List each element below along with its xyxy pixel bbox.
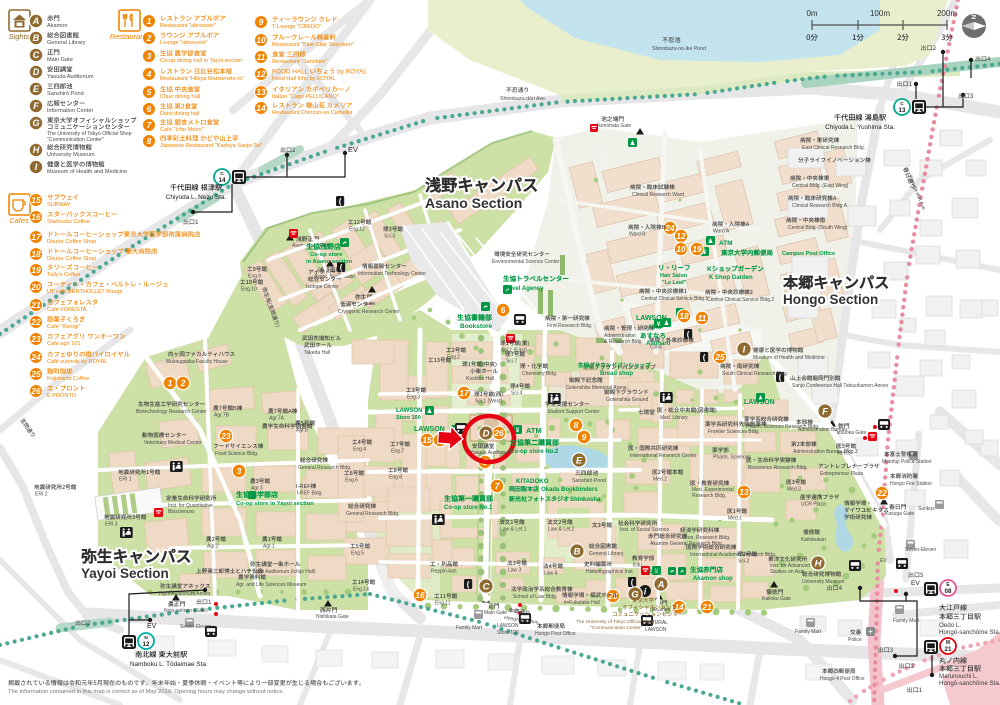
svg-text:23: 23: [220, 431, 231, 441]
svg-text:Doutor Coffee Shop: Doutor Coffee Shop: [47, 239, 96, 245]
svg-text:七徳堂: 七徳堂: [638, 408, 655, 416]
svg-text:Yayoi Section: Yayoi Section: [81, 566, 169, 581]
svg-text:22: 22: [876, 488, 887, 498]
svg-text:Entrepreneur Plaza: Entrepreneur Plaza: [820, 471, 863, 477]
svg-text:(: (: [703, 353, 706, 362]
svg-text:E: E: [576, 455, 583, 466]
svg-text:病院・入院棟B: 病院・入院棟B: [628, 223, 666, 231]
svg-text:6: 6: [501, 305, 506, 315]
svg-text:Family Mart: Family Mart: [893, 618, 920, 624]
svg-text:T-Lounge "CREDO": T-Lounge "CREDO": [272, 24, 321, 30]
svg-text:Chiyoda L. Nezu Sta.: Chiyoda L. Nezu Sta.: [166, 194, 227, 201]
svg-text:Ward B: Ward B: [629, 232, 646, 238]
svg-text:Asunaro: Asunaro: [646, 341, 671, 347]
svg-text:Agr.2: Agr.2: [207, 544, 219, 550]
svg-text:0分: 0分: [806, 32, 818, 43]
svg-text:20: 20: [30, 282, 41, 292]
svg-text:15: 15: [31, 195, 41, 205]
svg-text:Food Science Bldg.: Food Science Bldg.: [215, 451, 258, 457]
svg-text:工2号館: 工2号館: [446, 346, 466, 354]
svg-text:出口1: 出口1: [196, 597, 212, 606]
svg-text:Japanese Restaurant "Kadoya Sa: Japanese Restaurant "Kadoya Sanjo-Tei": [160, 143, 263, 149]
svg-text:D: D: [483, 428, 490, 439]
svg-text:千代田線 湯島駅: 千代田線 湯島駅: [834, 113, 887, 123]
svg-text:Law & Let.2: Law & Let.2: [548, 527, 575, 533]
svg-text:Shinobazu-dōri Ave.: Shinobazu-dōri Ave.: [500, 96, 546, 102]
svg-text:情報基盤センター: 情報基盤センター: [362, 262, 407, 270]
svg-text:生協書籍部: 生協書籍部: [457, 313, 492, 323]
svg-text:小柴ホール: 小柴ホール: [470, 367, 498, 375]
svg-text:General Research Bldg.: General Research Bldg.: [298, 465, 351, 471]
svg-text:F: F: [822, 406, 828, 417]
svg-text:Kaitokukan: Kaitokukan: [801, 537, 826, 543]
svg-text:I-REF棟: I-REF棟: [296, 482, 317, 490]
svg-text:Eng.14: Eng.14: [353, 587, 369, 593]
svg-text:B: B: [574, 546, 581, 557]
svg-text:定量生命科学研究所: 定量生命科学研究所: [166, 494, 217, 502]
svg-text:¥: ¥: [516, 427, 520, 434]
svg-text:24: 24: [664, 223, 675, 233]
svg-text:Restaurant "Hibiya Matsumoto-r: Restaurant "Hibiya Matsumoto-ro": [160, 76, 245, 82]
svg-text:Sci.7: Sci.7: [506, 359, 517, 365]
svg-text:23: 23: [30, 334, 41, 344]
svg-text:総合研究博物館: 総合研究博物館: [47, 143, 92, 152]
svg-text:Seven-Eleven: Seven-Eleven: [905, 547, 936, 553]
svg-text:Biotechnology Research Center: Biotechnology Research Center: [136, 409, 207, 415]
svg-text:史料編纂所: 史料編纂所: [584, 560, 612, 568]
svg-text:25: 25: [714, 352, 725, 362]
svg-text:100m: 100m: [870, 9, 890, 18]
svg-text:East Clinical Research Bldg.: East Clinical Research Bldg.: [802, 145, 865, 151]
svg-text:工11号館: 工11号館: [434, 592, 458, 600]
svg-text:法文1号館: 法文1号館: [499, 518, 525, 526]
svg-text:Agr.5: Agr.5: [296, 428, 308, 434]
svg-text:Cafe "Icho Metro": Cafe "Icho Metro": [160, 127, 204, 133]
svg-text:懐徳門: 懐徳門: [766, 587, 784, 596]
svg-text:理1号館(東): 理1号館(東): [500, 339, 529, 347]
svg-text:8: 8: [574, 420, 579, 430]
svg-text:出口2: 出口2: [75, 618, 91, 627]
svg-text:農5号館: 農5号館: [295, 419, 315, 427]
svg-text:武田ホール: 武田ホール: [304, 341, 332, 349]
svg-text:Hongo Section: Hongo Section: [783, 292, 878, 307]
svg-text:Co-op store: Co-op store: [310, 252, 343, 258]
svg-text:C: C: [483, 581, 490, 592]
svg-text:春日門: 春日門: [889, 502, 907, 511]
svg-text:Store 100: Store 100: [396, 415, 421, 421]
svg-text:理3号館: 理3号館: [383, 225, 403, 233]
svg-text:工5号館: 工5号館: [350, 542, 370, 550]
svg-text:Med.1: Med.1: [728, 516, 742, 522]
svg-text:上野英三郎博士とハチ公像: 上野英三郎博士とハチ公像: [196, 567, 264, 575]
svg-text:General Research Bldg.: General Research Bldg.: [346, 511, 399, 517]
svg-text:B: B: [33, 33, 40, 43]
svg-text:13: 13: [899, 107, 906, 114]
svg-text:ERI 2: ERI 2: [35, 492, 48, 498]
svg-text:Italian "Capo PELLICANO": Italian "Capo PELLICANO": [272, 94, 339, 100]
svg-text:Law 3: Law 3: [508, 568, 522, 574]
svg-text:Administration Bureau: Administration Bureau: [798, 427, 847, 433]
svg-text:情報学環・福武ホール: 情報学環・福武ホール: [562, 591, 618, 599]
svg-text:Agr.1: Agr.1: [263, 544, 275, 550]
svg-text:本部棟: 本部棟: [796, 418, 813, 426]
svg-text:地震研究所1号館: 地震研究所1号館: [118, 468, 161, 476]
svg-text:病院・南研究棟: 病院・南研究棟: [720, 362, 760, 370]
svg-text:21: 21: [701, 602, 712, 612]
svg-text:22: 22: [30, 317, 41, 327]
svg-text:11: 11: [698, 313, 707, 323]
svg-text:Sanjo Conference Hall Tatsuoka: Sanjo Conference Hall Tatsuokamon Annex: [792, 383, 889, 389]
svg-text:4: 4: [146, 69, 152, 79]
svg-text:生物生産工学研究センター: 生物生産工学研究センター: [138, 400, 206, 408]
svg-text:病院・中央棟南: 病院・中央棟南: [786, 216, 826, 224]
svg-text:Yasuda Auditorium: Yasuda Auditorium: [47, 74, 94, 80]
svg-text:General Library: General Library: [47, 40, 86, 46]
svg-text:東京大学内郵便局: 東京大学内郵便局: [720, 247, 774, 257]
svg-text:0m: 0m: [806, 9, 817, 18]
svg-text:農3号館: 農3号館: [250, 477, 270, 485]
svg-text:工13号館: 工13号館: [428, 356, 452, 364]
svg-text:ERI 3: ERI 3: [105, 522, 118, 528]
svg-text:Café "Kurogi": Café "Kurogi": [47, 324, 81, 330]
svg-text:Ikenohata Gate: Ikenohata Gate: [597, 123, 631, 129]
svg-text:医・生命科学実験棟: 医・生命科学実験棟: [746, 456, 797, 464]
svg-text:Bookstore: Bookstore: [460, 323, 493, 330]
svg-text:工・列品館: 工・列品館: [430, 560, 458, 568]
svg-text:レストラン 椿山荘 カメリア: レストラン 椿山荘 カメリア: [272, 101, 353, 110]
svg-text:Family Mart: Family Mart: [795, 629, 822, 635]
svg-text:Eng.12: Eng.12: [349, 227, 365, 233]
svg-text:EV: EV: [880, 558, 887, 564]
svg-text:出口4: 出口4: [975, 54, 991, 63]
svg-text:FOOD HALL いちょう by ROYAL: FOOD HALL いちょう by ROYAL: [272, 67, 367, 76]
svg-text:Chuo dining hall: Chuo dining hall: [160, 94, 200, 100]
svg-text:I: I: [743, 344, 746, 355]
svg-text:病院・東研究棟: 病院・東研究棟: [800, 136, 840, 144]
svg-text:SUBWAY: SUBWAY: [47, 202, 71, 208]
svg-text:Eng.6: Eng.6: [345, 478, 358, 484]
svg-text:Sci-2: Sci-2: [738, 559, 750, 565]
svg-text:Biosciences: Biosciences: [168, 509, 195, 515]
svg-text:赤門: 赤門: [47, 14, 60, 23]
svg-text:Inst. of Social Science: Inst. of Social Science: [620, 527, 669, 533]
svg-text:(: (: [631, 578, 634, 587]
svg-text:E: E: [33, 84, 40, 94]
svg-text:生協グラウンドパンショップ: 生協グラウンドパンショップ: [578, 361, 651, 369]
svg-text:International Research Center: International Research Center: [630, 453, 697, 459]
svg-text:KITADOKO: KITADOKO: [516, 476, 549, 485]
svg-text:Akamon: Akamon: [47, 23, 68, 29]
svg-text:Hongo Post Office: Hongo Post Office: [535, 631, 576, 637]
svg-text:19: 19: [692, 244, 702, 254]
svg-text:Café yurinoki by ROYAL: Café yurinoki by ROYAL: [47, 359, 107, 365]
svg-text:Central Bldg. (East Wing): Central Bldg. (East Wing): [792, 183, 849, 189]
svg-text:EV: EV: [147, 623, 157, 630]
svg-text:工7号館: 工7号館: [390, 440, 410, 448]
svg-text:麹町珈琲: 麹町珈琲: [47, 367, 73, 376]
svg-text:医3号館: 医3号館: [786, 478, 806, 486]
svg-text:工10号館: 工10号館: [240, 278, 264, 286]
svg-text:13: 13: [256, 87, 266, 97]
svg-text:The University of Tokyo Offici: The University of Tokyo Official Shop: [576, 619, 655, 625]
svg-text:本郷四郵便局: 本郷四郵便局: [822, 667, 856, 675]
svg-text:K Shop Garden: K Shop Garden: [709, 275, 753, 281]
svg-text:Student Support Center: Student Support Center: [547, 409, 600, 415]
svg-text:農2号館: 農2号館: [206, 535, 226, 543]
svg-text:Law 4: Law 4: [544, 571, 558, 577]
svg-text:山上会館龍岡門別館: 山上会館龍岡門別館: [790, 374, 841, 382]
svg-text:工4号館: 工4号館: [352, 438, 372, 446]
svg-text:理1号館(西): 理1号館(西): [474, 390, 503, 398]
svg-text:Museum of Health and Medicine: Museum of Health and Medicine: [753, 355, 825, 361]
svg-text:病院・中央棟東: 病院・中央棟東: [790, 174, 830, 182]
svg-text:"Le Leaf": "Le Leaf": [662, 280, 687, 286]
svg-text:The information contained in t: The information contained in this map is…: [8, 689, 285, 695]
svg-text:医・教育研究棟: 医・教育研究棟: [690, 479, 730, 487]
svg-text:1: 1: [147, 16, 152, 26]
svg-text:学術研究棟: 学術研究棟: [844, 513, 872, 521]
svg-text:出口3: 出口3: [958, 91, 974, 100]
svg-text:社会科学研究所: 社会科学研究所: [618, 519, 658, 527]
svg-text:総合図書館: 総合図書館: [47, 31, 80, 40]
svg-text:11: 11: [257, 52, 266, 62]
svg-text:D: D: [33, 67, 40, 77]
svg-text:26: 26: [493, 428, 504, 438]
svg-text:Namboku L. Tōdaimae Sta.: Namboku L. Tōdaimae Sta.: [130, 661, 208, 668]
svg-text:Eng.3: Eng.3: [407, 395, 420, 401]
svg-text:薬学部: 薬学部: [712, 446, 729, 454]
svg-text:出口3: 出口3: [878, 645, 894, 654]
svg-text:Ward A: Ward A: [713, 229, 730, 235]
svg-text:G: G: [32, 118, 39, 128]
svg-text:Eng.7: Eng.7: [391, 449, 404, 455]
svg-text:First Research Bldg.: First Research Bldg.: [547, 323, 592, 329]
svg-text:薬学系研究科先端創薬棟: 薬学系研究科先端創薬棟: [705, 420, 767, 428]
svg-text:(: (: [467, 580, 470, 589]
svg-text:エ・プロント: エ・プロント: [47, 384, 85, 393]
svg-text:学生支援センター: 学生支援センター: [545, 400, 590, 408]
svg-text:I-REF Bldg.: I-REF Bldg.: [297, 491, 323, 497]
svg-text:Co-op store in Yayoi section: Co-op store in Yayoi section: [236, 501, 314, 507]
svg-text:10: 10: [676, 244, 686, 254]
svg-text:出口5: 出口5: [908, 570, 924, 579]
svg-text:レストラン アブルボア: レストラン アブルボア: [160, 14, 226, 23]
svg-text:生協第一購買部: 生協第一購買部: [444, 494, 493, 504]
svg-text:Store 100: Store 100: [497, 630, 519, 636]
svg-text:ブルークレール精養軒: ブルークレール精養軒: [272, 33, 337, 42]
svg-text:Clinical Research Ward: Clinical Research Ward: [632, 192, 684, 198]
svg-text:ii=Fukutake Hall: ii=Fukutake Hall: [564, 600, 600, 606]
svg-text:Hongō-sanchōme Sta.: Hongō-sanchōme Sta.: [939, 629, 1000, 636]
svg-text:農1号館: 農1号館: [262, 535, 282, 543]
svg-text:農7号館A棟: 農7号館A棟: [268, 407, 298, 415]
svg-text:病院・中央診療棟2: 病院・中央診療棟2: [705, 288, 753, 296]
svg-text:Akamon General Research Bldg.: Akamon General Research Bldg.: [650, 541, 723, 547]
svg-text:向ヶ岡ファカルティハウス: 向ヶ岡ファカルティハウス: [168, 350, 236, 358]
svg-text:2: 2: [146, 33, 152, 43]
svg-text:総合研究博物館: 総合研究博物館: [802, 570, 842, 578]
svg-text:医・総合中央館(図書館): 医・総合中央館(図書館): [657, 406, 717, 414]
svg-text:Kショップガーデン: Kショップガーデン: [707, 263, 764, 273]
svg-text:総合図書館: 総合図書館: [589, 542, 617, 550]
svg-text:21: 21: [30, 300, 41, 310]
svg-text:Marunouchi L.: Marunouchi L.: [939, 673, 978, 680]
svg-text:Daini dining hall: Daini dining hall: [160, 111, 200, 117]
svg-text:理4号館: 理4号館: [510, 382, 530, 390]
svg-text:新光社フォトスタジオ: 新光社フォトスタジオ: [508, 494, 569, 503]
svg-text:Isotope Center: Isotope Center: [306, 284, 339, 290]
svg-text:Agr.7B: Agr.7B: [214, 413, 230, 419]
svg-text:200m: 200m: [937, 9, 957, 18]
svg-text:UCR Plaza: UCR Plaza: [801, 502, 826, 508]
svg-text:24: 24: [30, 352, 41, 362]
svg-text:University Museum: University Museum: [47, 152, 95, 158]
svg-text:病院・臨床研究棟A: 病院・臨床研究棟A: [788, 194, 837, 202]
svg-text:10: 10: [256, 35, 266, 45]
svg-text:Research Bldg.: Research Bldg.: [692, 493, 726, 499]
svg-text:出口1: 出口1: [897, 79, 913, 88]
svg-text:工14号館: 工14号館: [352, 578, 376, 586]
svg-text:産学連携プラザ: 産学連携プラザ: [800, 493, 840, 501]
svg-text:14: 14: [256, 103, 266, 113]
svg-text:理2号館: 理2号館: [737, 550, 757, 558]
svg-text:Restaurant "Sanshiro": Restaurant "Sanshiro": [272, 59, 327, 65]
svg-text:三四郎池: 三四郎池: [47, 82, 73, 91]
svg-text:ラウンジ アブルボア: ラウンジ アブルボア: [160, 31, 220, 40]
svg-text:医・国際共同研究棟: 医・国際共同研究棟: [628, 444, 679, 452]
svg-text:2: 2: [180, 378, 186, 388]
svg-text:池之端門: 池之端門: [601, 114, 624, 123]
svg-text:生協トラベルセンター: 生協トラベルセンター: [503, 273, 569, 283]
svg-text:Sanshirō Pond: Sanshirō Pond: [47, 91, 84, 97]
svg-text:9: 9: [259, 17, 264, 27]
svg-text:懐徳館: 懐徳館: [803, 528, 820, 536]
svg-text:コミュニケーションセンター: コミュニケーションセンター: [47, 122, 130, 131]
svg-text:Chemistry Bldg.: Chemistry Bldg.: [522, 371, 557, 377]
svg-text:広報センター: 広報センター: [47, 99, 85, 108]
svg-text:正門: 正門: [488, 601, 500, 610]
svg-text:不忍池: 不忍池: [662, 35, 681, 44]
svg-text:Starbucks Coffee: Starbucks Coffee: [47, 219, 90, 225]
svg-text:生協 中央食堂: 生協 中央食堂: [160, 85, 201, 94]
svg-text:+: +: [868, 629, 872, 636]
svg-text:地震研究所3号館: 地震研究所3号館: [104, 513, 147, 521]
svg-text:Family Mart: Family Mart: [456, 625, 483, 631]
svg-text:Clinical Research Bldg.A: Clinical Research Bldg.A: [792, 203, 848, 209]
svg-text:生協農学部店: 生協農学部店: [236, 490, 278, 500]
svg-text:生協 第2食堂: 生協 第2食堂: [160, 102, 198, 111]
svg-text:Mukougaoka Faculty House: Mukougaoka Faculty House: [166, 359, 228, 365]
svg-text:& Research Bldg.: & Research Bldg.: [604, 339, 643, 345]
svg-text:生協第二購買部: 生協第二購買部: [510, 438, 559, 448]
svg-text:アントレプレナープラザ: アントレプレナープラザ: [818, 462, 880, 470]
svg-text:浅野キャンパス: 浅野キャンパス: [425, 172, 538, 196]
svg-text:Agr.7A: Agr.7A: [269, 416, 285, 422]
svg-text:病院・入院棟A: 病院・入院棟A: [712, 220, 750, 228]
svg-text:Information Technology Center: Information Technology Center: [358, 271, 426, 277]
svg-text:Eng.11: Eng.11: [435, 601, 451, 607]
svg-text:第2本部棟: 第2本部棟: [791, 440, 817, 448]
svg-text:総合センター: 総合センター: [308, 275, 342, 283]
svg-text:8: 8: [147, 136, 152, 146]
svg-text:カフェゆりの樹バイロイヤル: カフェゆりの樹バイロイヤル: [47, 350, 131, 359]
svg-text:Historiographical Inst.: Historiographical Inst.: [586, 569, 634, 575]
svg-text:18: 18: [31, 249, 41, 259]
svg-text:Hongo Fire Station: Hongo Fire Station: [890, 481, 932, 487]
svg-text:三四郎池: 三四郎池: [575, 468, 598, 477]
svg-text:Central Clinical Service Bldg.: Central Clinical Service Bldg.2: [707, 297, 774, 303]
svg-text:病院・第一研究棟: 病院・第一研究棟: [545, 314, 590, 322]
svg-text:イタリアン カポペリカーノ: イタリアン カポペリカーノ: [272, 85, 350, 94]
svg-text:弥生講堂アネックス: 弥生講堂アネックス: [160, 582, 211, 590]
svg-text:理7号館: 理7号館: [505, 350, 525, 358]
svg-text:9: 9: [582, 432, 587, 442]
svg-text:弥生キャンパス: 弥生キャンパス: [81, 544, 192, 567]
svg-text:総合研究棟: 総合研究棟: [348, 502, 376, 510]
svg-text:LAWSON: LAWSON: [497, 623, 519, 629]
svg-text:Restaurant Chinzan-so Camellia: Restaurant Chinzan-so Camellia: [272, 110, 353, 116]
svg-text:本郷三丁目駅: 本郷三丁目駅: [939, 612, 981, 622]
svg-text:Cryogenic Research Center: Cryogenic Research Center: [338, 309, 400, 315]
svg-text:South Clinical Research Bldg.: South Clinical Research Bldg.: [722, 371, 788, 377]
svg-text:15: 15: [422, 435, 432, 445]
svg-text:Sanshirō Pond: Sanshirō Pond: [572, 478, 606, 484]
svg-text:Sci.3: Sci.3: [384, 234, 395, 240]
svg-text:General Library: General Library: [589, 551, 624, 557]
svg-text:3分: 3分: [941, 32, 953, 43]
svg-text:ユーティー・カフェ・ベルトレ・ルージュ: ユーティー・カフェ・ベルトレ・ルージュ: [47, 280, 168, 289]
svg-text:ATM: ATM: [648, 566, 662, 576]
svg-text:Reppin-kan: Reppin-kan: [431, 569, 457, 575]
svg-text:あすなろ: あすなろ: [640, 330, 666, 340]
svg-text:12: 12: [143, 641, 150, 648]
svg-text:5: 5: [147, 87, 152, 97]
svg-text:International Academic Researc: International Academic Research Bldg.: [690, 552, 776, 558]
svg-text:(: (: [339, 197, 342, 206]
svg-text:農正門: 農正門: [168, 599, 186, 608]
svg-text:スターバックスコーヒー: スターバックスコーヒー: [47, 210, 117, 219]
svg-text:ティーラウンジ クレド: ティーラウンジ クレド: [272, 15, 338, 24]
svg-text:生協 農学部食堂: 生協 農学部食堂: [160, 49, 207, 58]
svg-text:環境安全研究センター: 環境安全研究センター: [494, 250, 550, 258]
svg-text:食堂 三四郎: 食堂 三四郎: [272, 50, 306, 59]
svg-text:Law & Let.1: Law & Let.1: [500, 527, 527, 533]
svg-text:本郷消防署: 本郷消防署: [890, 472, 918, 480]
svg-text:Veterinary Medical Center: Veterinary Medical Center: [144, 440, 202, 446]
svg-text:1: 1: [168, 378, 173, 388]
svg-text:2分: 2分: [897, 32, 909, 43]
svg-text:17: 17: [459, 388, 470, 398]
svg-text:安田講堂: 安田講堂: [472, 442, 495, 450]
svg-text:Seven-Eleven: Seven-Eleven: [180, 624, 211, 630]
svg-text:17: 17: [31, 232, 42, 242]
svg-text:21: 21: [945, 646, 952, 653]
svg-text:ドトールコーヒーショップ 東大病院店: ドトールコーヒーショップ 東大病院店: [47, 247, 158, 256]
svg-text:Travel Agency: Travel Agency: [503, 286, 544, 292]
svg-text:ERI 1: ERI 1: [119, 477, 132, 483]
svg-text:Asano Section: Asano Section: [425, 195, 522, 211]
svg-text:Cafes: Cafes: [9, 216, 29, 225]
svg-text:Restaurant "Blue Clair Seiyoke: Restaurant "Blue Clair Seiyoken": [272, 42, 354, 48]
svg-text:Studies on Asia: Studies on Asia: [770, 569, 805, 575]
svg-text:"Communication Center": "Communication Center": [590, 625, 643, 631]
svg-text:法4号館: 法4号館: [543, 562, 563, 570]
svg-text:千代田線 根津駅: 千代田線 根津駅: [170, 183, 223, 193]
svg-text:Kojimachi Coffee: Kojimachi Coffee: [47, 376, 89, 382]
svg-text:Doutor Coffee Shop: Doutor Coffee Shop: [47, 256, 96, 262]
svg-text:3: 3: [237, 466, 242, 476]
svg-text:出口2: 出口2: [280, 145, 296, 154]
